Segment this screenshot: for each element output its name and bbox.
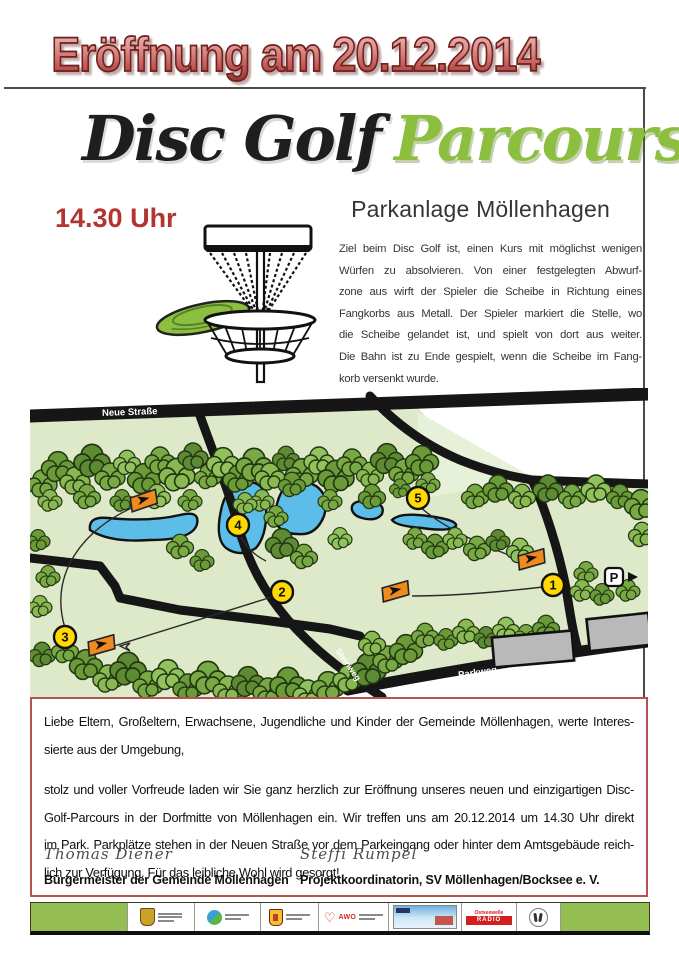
svg-text:P: P [610, 570, 619, 585]
photo-banner-icon [393, 905, 457, 929]
logo-partner [517, 903, 561, 931]
svg-text:1: 1 [549, 578, 556, 593]
hole-marker-5: 5 [407, 487, 429, 509]
partner-ring-icon [529, 908, 548, 927]
svg-text:5: 5 [414, 491, 421, 506]
svg-text:2: 2 [278, 585, 285, 600]
awo-heart-icon: ♡ [324, 911, 336, 924]
sponsor-logos: ♡ AWO Ostseewelle RADIO [127, 903, 561, 931]
gemeinde-crest-icon [269, 909, 283, 926]
logo-gemeinde [261, 903, 319, 931]
park-map: 1 2 3 4 5 P Neue Straße Steinweg Parkweg [30, 388, 648, 697]
svg-text:4: 4 [234, 518, 242, 533]
page-title: Eröffnung am 20.12.2014 [30, 28, 561, 83]
signature-thomas-diener: Thomas Diener [44, 845, 173, 863]
poster-page: Eröffnung am 20.12.2014 Disc GolfParcour… [0, 0, 679, 960]
hole-marker-3: 3 [54, 626, 76, 648]
street-label-neue-strasse: Neue Straße [102, 406, 158, 419]
heading-disc-golf: Disc Golf [82, 102, 380, 175]
logo-schule [195, 903, 261, 931]
main-heading: Disc GolfParcours [82, 102, 679, 175]
hole-marker-4: 4 [227, 514, 249, 536]
sportverein-crest-icon [140, 908, 155, 926]
role-projektkoordinatorin: Projektkoordinatorin, SV Möllenhagen/Boc… [300, 873, 599, 887]
signature-steffi-rumpel: Steffi Rumpel [300, 845, 417, 863]
logo-ostseewelle: Ostseewelle RADIO [462, 903, 517, 931]
subtitle-location: Parkanlage Möllenhagen [340, 196, 610, 223]
logo-sportverein [127, 903, 195, 931]
sponsor-bar: ♡ AWO Ostseewelle RADIO [30, 902, 650, 935]
svg-text:3: 3 [61, 630, 68, 645]
logo-banner [389, 903, 462, 931]
role-buergermeister: Bürgermeister der Gemeinde Möllenhagen [44, 873, 289, 887]
rules-description: Ziel beim Disc Golf ist, einen Kurs mit … [339, 239, 642, 390]
hole-marker-2: 2 [271, 581, 293, 603]
heading-parcours: Parcours [394, 102, 679, 175]
logo-awo: ♡ AWO [319, 903, 389, 931]
invitation-box: Liebe Eltern, Großeltern, Erwachsene, Ju… [30, 697, 648, 897]
horizontal-divider [4, 87, 646, 89]
schule-swirl-icon [207, 910, 222, 925]
hole-marker-1: 1 [542, 574, 564, 596]
disc-golf-basket-illustration [148, 216, 343, 390]
